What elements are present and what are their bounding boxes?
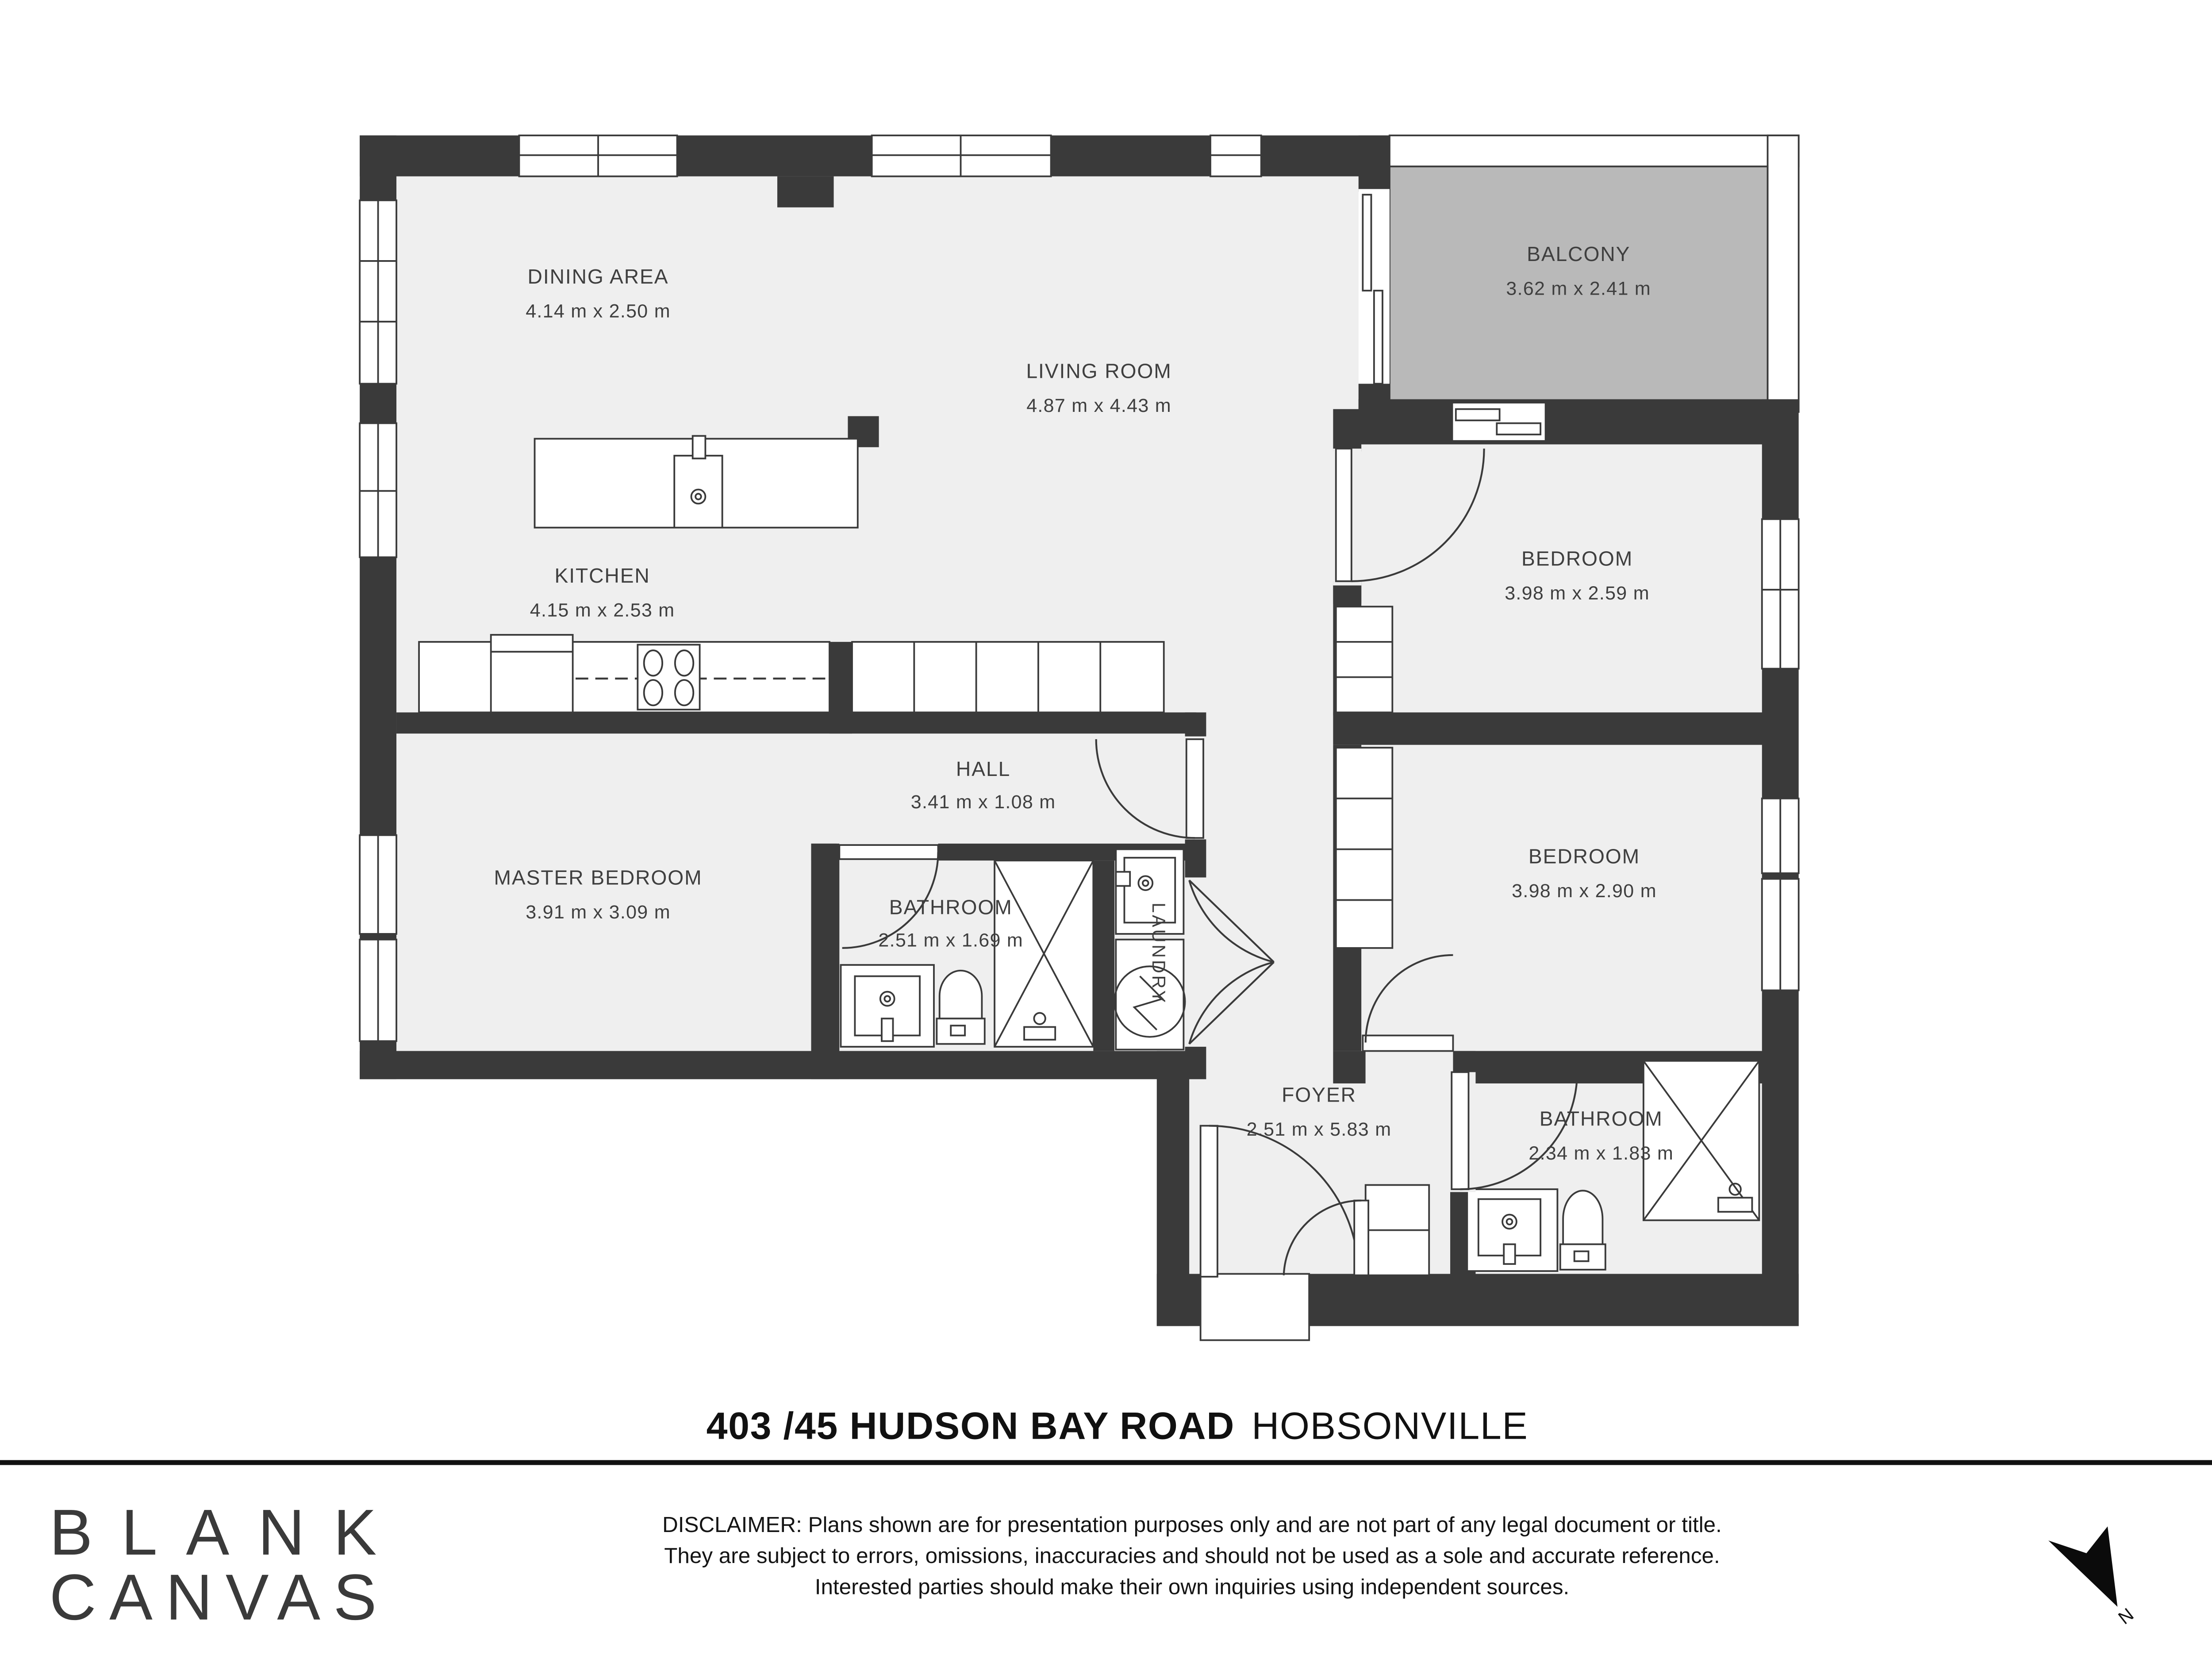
wall-counter-end — [829, 642, 852, 733]
entry-alcove — [1201, 1274, 1310, 1340]
sliding-door-balcony-bed1 — [1453, 403, 1544, 440]
room-label-kitchen: KITCHEN — [554, 564, 650, 587]
window-top-3 — [1210, 135, 1261, 176]
kitchen-counter — [419, 635, 1164, 712]
room-label-bathroom2: BATHROOM — [1540, 1107, 1663, 1130]
footer-divider — [0, 1460, 2212, 1465]
window-right-bed1 — [1762, 519, 1799, 668]
toilet-bath2 — [1560, 1190, 1605, 1270]
wall-hall-bottom-a — [811, 844, 837, 860]
room-dims-dining: 4.14 m x 2.50 m — [526, 300, 671, 322]
disclaimer-line2: They are subject to errors, omissions, i… — [664, 1544, 1720, 1568]
window-right-bed2-2 — [1762, 879, 1799, 991]
disclaimer-line3: Interested parties should make their own… — [815, 1575, 1570, 1599]
room-dims-bedroom2: 3.98 m x 2.90 m — [1512, 880, 1657, 902]
room-dims-living: 4.87 m x 4.43 m — [1026, 395, 1171, 416]
footer: 403 /45 HUDSON BAY ROADHOBSONVILLE BLANK… — [0, 1405, 2212, 1634]
wall-balcony-bottom — [1359, 399, 1768, 444]
room-label-master: MASTER BEDROOM — [494, 866, 703, 889]
island-faucet — [693, 436, 706, 458]
room-dims-bathroom2: 2.34 m x 1.83 m — [1528, 1143, 1674, 1164]
room-dims-hall: 3.41 m x 1.08 m — [911, 791, 1056, 813]
shower-bath2 — [1644, 1061, 1759, 1220]
room-dims-kitchen: 4.15 m x 2.53 m — [530, 599, 675, 621]
island-sink — [674, 456, 722, 528]
wall-balcony-left-stub-bottom — [1359, 384, 1390, 444]
wall-master-right — [811, 844, 840, 1079]
room-label-hall: HALL — [956, 757, 1010, 780]
room-dims-bedroom1: 3.98 m x 2.59 m — [1505, 583, 1650, 604]
floor-plan-page: DINING AREA 4.14 m x 2.50 m LIVING ROOM … — [0, 0, 2212, 1659]
wall-bath1-laundry — [1093, 860, 1114, 1051]
logo-line2: CANVAS — [50, 1561, 377, 1634]
wall-balcony-left-stub-top — [1359, 135, 1390, 192]
wall-kitchen — [396, 712, 1196, 733]
logo: BLANK CANVAS — [50, 1496, 377, 1634]
room-label-balcony: BALCONY — [1527, 242, 1630, 265]
north-arrow: N — [2048, 1526, 2137, 1628]
window-left-master-2 — [360, 940, 396, 1041]
window-right-bed2-1 — [1762, 799, 1799, 873]
room-label-bedroom2: BEDROOM — [1528, 845, 1640, 868]
wall-bottom-left — [360, 1051, 1189, 1079]
window-left-dining-1 — [360, 200, 396, 384]
address-suburb: HOBSONVILLE — [1252, 1405, 1528, 1448]
room-dims-bathroom1: 2.51 m x 1.69 m — [878, 930, 1023, 951]
wall-bath2-left-a — [1450, 1051, 1475, 1072]
room-dims-balcony: 3.62 m x 2.41 m — [1506, 278, 1651, 299]
wardrobe-bed1 — [1336, 607, 1393, 712]
vanity-bath1 — [841, 965, 934, 1047]
balcony-railing-right — [1768, 135, 1799, 412]
wall-hall-right-c — [1185, 1047, 1206, 1079]
room-label-bedroom1: BEDROOM — [1521, 547, 1633, 570]
kitchen-island — [535, 436, 858, 527]
room-dims-foyer: 2.51 m x 5.83 m — [1247, 1119, 1392, 1140]
stove — [637, 645, 699, 710]
room-label-bathroom1: BATHROOM — [889, 895, 1013, 918]
wall-bed2-bottom-a — [1333, 1051, 1365, 1083]
room-label-foyer: FOYER — [1282, 1083, 1356, 1106]
north-label: N — [2114, 1604, 2138, 1628]
window-top-1 — [519, 135, 677, 176]
disclaimer-line1: DISCLAIMER: Plans shown are for presenta… — [662, 1513, 1722, 1537]
sliding-door-living-balcony — [1359, 189, 1390, 384]
window-left-dining-2 — [360, 423, 396, 557]
logo-line1: BLANK — [50, 1496, 377, 1569]
address-main: 403 /45 HUDSON BAY ROAD — [707, 1405, 1235, 1448]
room-dims-master: 3.91 m x 3.09 m — [526, 902, 671, 923]
balcony-area — [1390, 135, 1799, 412]
wall-bed1-bed2 — [1333, 712, 1770, 745]
toilet-bath1 — [937, 971, 984, 1044]
shower-bath1 — [995, 860, 1093, 1047]
pillar-top-wall — [777, 177, 834, 207]
fridge — [491, 635, 573, 712]
room-label-dining: DINING AREA — [528, 265, 669, 288]
room-label-living: LIVING ROOM — [1026, 360, 1171, 383]
kitchen-cabinets — [852, 642, 1164, 712]
room-label-laundry: LAUNDRY — [1148, 902, 1169, 1005]
foyer-closet — [1366, 1185, 1429, 1275]
north-arrow-icon — [2048, 1526, 2117, 1607]
disclaimer-block: DISCLAIMER: Plans shown are for presenta… — [662, 1513, 1722, 1599]
wall-hall-right-a — [1185, 712, 1206, 736]
wall-bed1-left-a — [1333, 409, 1361, 452]
wall-hall-right-b — [1185, 839, 1206, 877]
address-title: 403 /45 HUDSON BAY ROADHOBSONVILLE — [707, 1405, 1528, 1448]
vanity-bath2 — [1467, 1189, 1557, 1271]
wardrobe-bed2 — [1336, 748, 1393, 948]
window-left-master-1 — [360, 835, 396, 934]
window-top-2 — [872, 135, 1051, 176]
balcony-railing-top — [1390, 135, 1799, 166]
